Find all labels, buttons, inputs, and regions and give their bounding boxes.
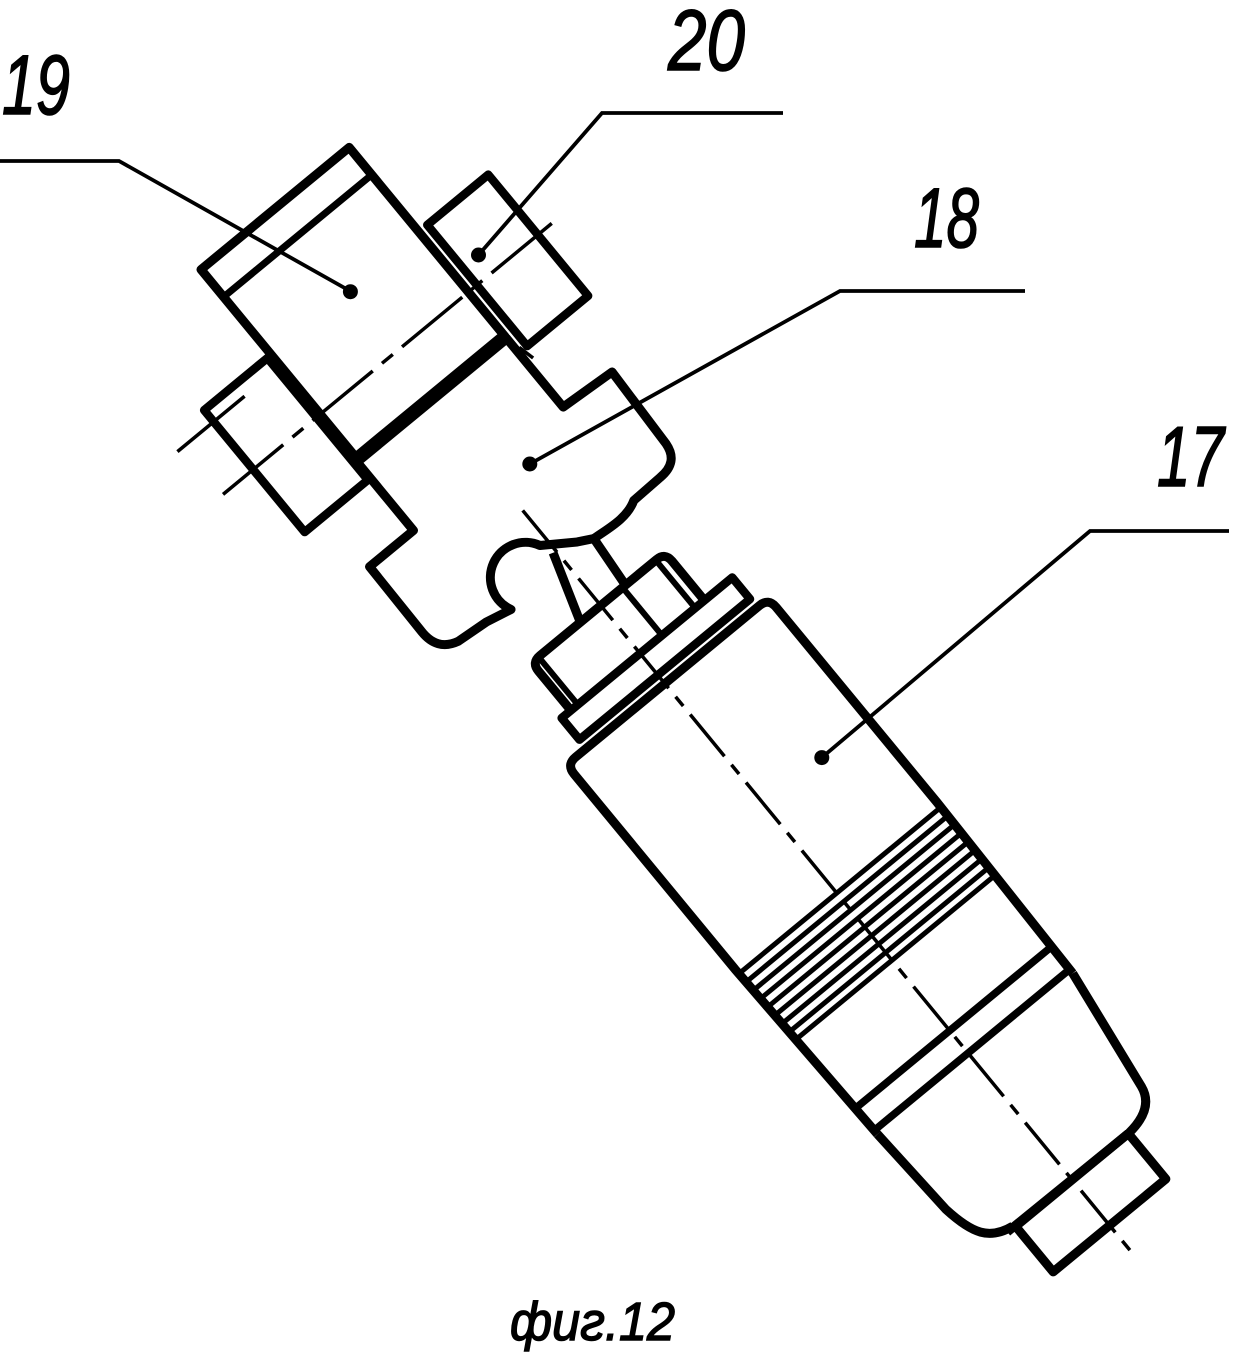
svg-text:18: 18 bbox=[914, 171, 979, 265]
svg-text:19: 19 bbox=[2, 38, 70, 132]
svg-text:фиг.12: фиг.12 bbox=[510, 1292, 675, 1352]
svg-text:20: 20 bbox=[667, 0, 745, 89]
svg-text:17: 17 bbox=[1157, 410, 1226, 505]
